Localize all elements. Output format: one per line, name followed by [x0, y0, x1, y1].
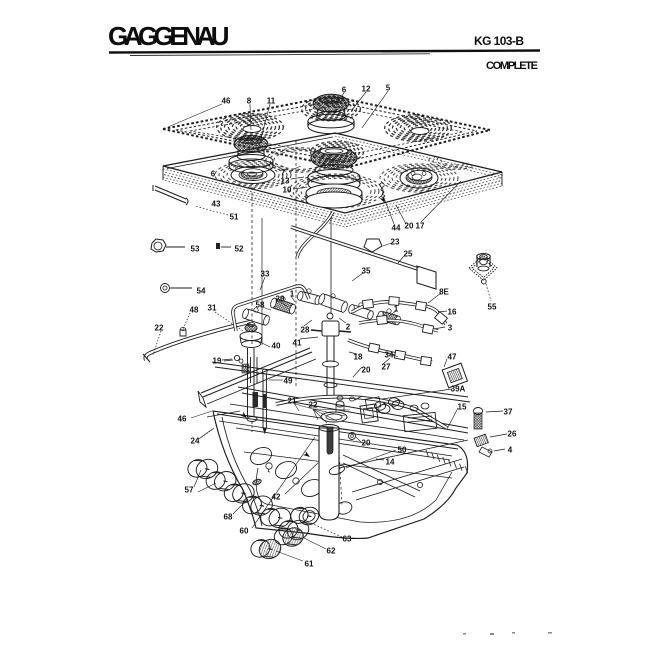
svg-text:60: 60	[240, 527, 249, 536]
svg-text:39A: 39A	[451, 385, 466, 394]
svg-text:43: 43	[212, 200, 221, 209]
svg-text:KG 103-B: KG 103-B	[474, 34, 524, 48]
svg-text:46: 46	[222, 97, 231, 106]
svg-text:19: 19	[213, 357, 222, 366]
svg-text:50: 50	[398, 446, 407, 455]
svg-text:29: 29	[276, 295, 285, 304]
svg-text:8: 8	[247, 97, 252, 106]
svg-text:61: 61	[305, 560, 314, 569]
svg-text:16: 16	[448, 308, 457, 317]
svg-text:58: 58	[256, 301, 265, 310]
svg-text:8E: 8E	[439, 288, 449, 297]
svg-text:46: 46	[178, 415, 187, 424]
svg-text:11: 11	[267, 97, 276, 106]
svg-text:COMPLETE: COMPLETE	[486, 60, 538, 72]
svg-text:15: 15	[458, 403, 467, 412]
svg-text:3: 3	[448, 324, 453, 333]
svg-text:53: 53	[191, 245, 200, 254]
svg-text:24: 24	[191, 437, 200, 446]
svg-text:6: 6	[211, 170, 216, 179]
svg-text:44: 44	[392, 224, 401, 233]
svg-text:18: 18	[354, 353, 363, 362]
svg-text:20: 20	[362, 439, 371, 448]
svg-text:54: 54	[197, 287, 206, 296]
svg-text:34: 34	[385, 351, 394, 360]
svg-text:48: 48	[190, 306, 199, 315]
svg-text:1: 1	[394, 305, 399, 314]
svg-text:2: 2	[346, 323, 351, 332]
svg-text:57: 57	[185, 486, 194, 495]
svg-text:26: 26	[508, 430, 517, 439]
svg-text:6: 6	[342, 86, 347, 95]
svg-text:23: 23	[391, 238, 400, 247]
svg-text:62: 62	[327, 547, 336, 556]
svg-text:51: 51	[230, 213, 239, 222]
svg-text:10: 10	[283, 186, 292, 195]
svg-text:47: 47	[448, 353, 457, 362]
svg-text:21: 21	[288, 397, 297, 406]
svg-text:17: 17	[416, 222, 425, 231]
svg-text:63: 63	[343, 535, 352, 544]
svg-text:40: 40	[272, 342, 281, 351]
svg-text:28: 28	[301, 326, 310, 335]
svg-text:68: 68	[224, 513, 233, 522]
svg-text:25: 25	[404, 250, 413, 259]
svg-text:22: 22	[155, 324, 164, 333]
svg-text:14: 14	[386, 458, 395, 467]
svg-text:22: 22	[309, 401, 318, 410]
svg-text:52: 52	[235, 245, 244, 254]
svg-text:35: 35	[362, 267, 371, 276]
svg-text:42: 42	[272, 493, 281, 502]
svg-text:33: 33	[261, 270, 270, 279]
svg-text:27: 27	[382, 363, 391, 372]
svg-text:GAGGENAU: GAGGENAU	[108, 21, 229, 51]
svg-text:13: 13	[281, 177, 290, 186]
svg-text:37: 37	[504, 408, 513, 417]
svg-text:12: 12	[362, 85, 371, 94]
svg-text:41: 41	[293, 339, 302, 348]
svg-text:4: 4	[508, 446, 513, 455]
svg-text:20: 20	[362, 366, 371, 375]
svg-text:1: 1	[290, 290, 295, 299]
svg-text:20: 20	[405, 222, 414, 231]
svg-text:31: 31	[208, 304, 217, 313]
svg-text:55: 55	[488, 303, 497, 312]
svg-text:49: 49	[284, 377, 293, 386]
svg-text:5: 5	[386, 84, 391, 93]
